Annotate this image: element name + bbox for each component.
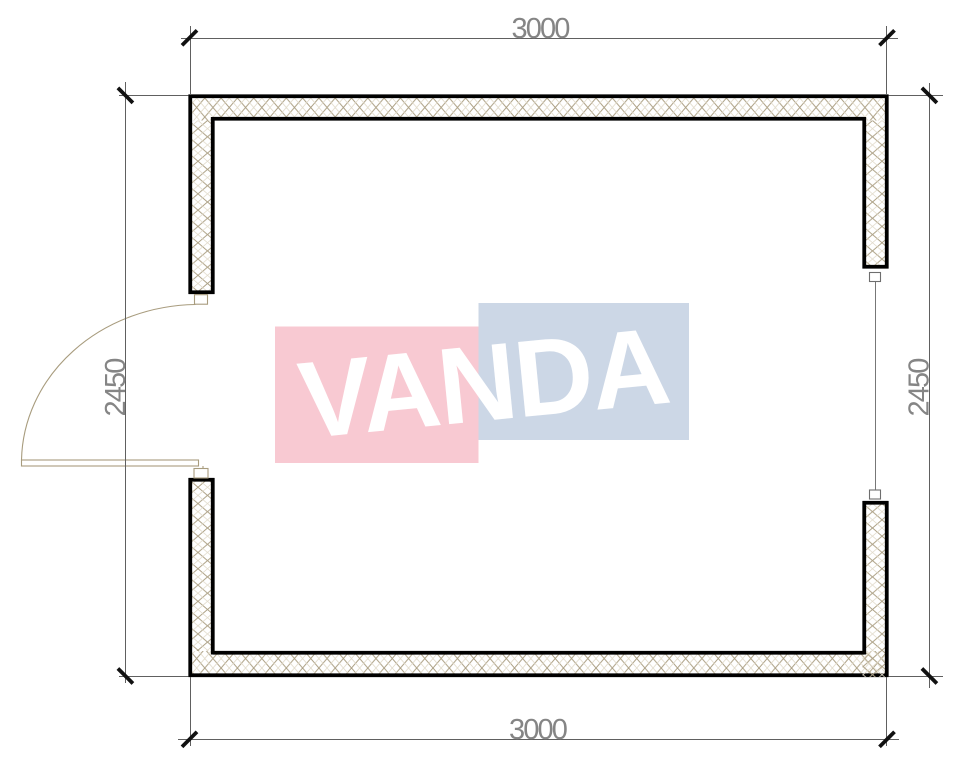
svg-text:3000: 3000 [512, 13, 570, 45]
svg-text:2450: 2450 [100, 359, 132, 417]
svg-text:3000: 3000 [509, 714, 567, 746]
svg-text:2450: 2450 [903, 359, 935, 417]
